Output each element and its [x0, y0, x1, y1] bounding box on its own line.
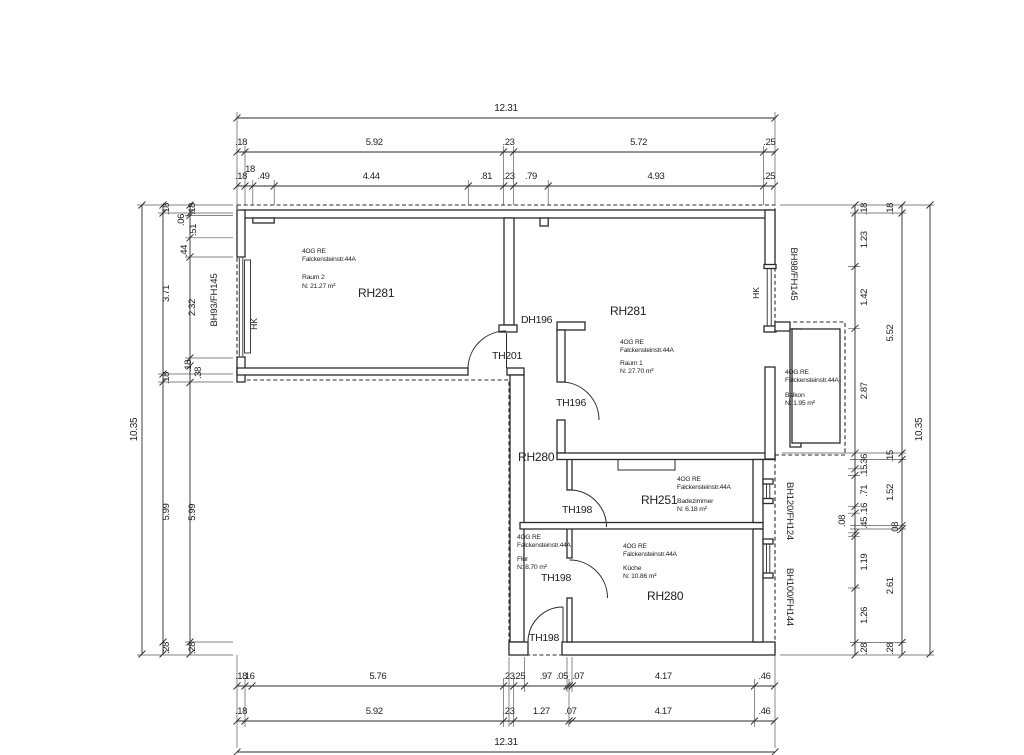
dim-label: .25 [763, 137, 775, 148]
dim-label: .28 [859, 643, 870, 655]
raum2-area: N: 21.27 m² [302, 283, 336, 290]
dim-row-bottom-total: 12.31 [234, 737, 779, 755]
dim-label: 2.32 [187, 299, 198, 316]
dim-label: 18 [245, 164, 255, 175]
dim-label: 12.31 [494, 103, 518, 114]
window-niche [763, 539, 773, 544]
dim-label: 12.31 [494, 737, 518, 748]
dim-label: 1.27 [533, 706, 550, 717]
bad-unit-line1: 4OG RE [677, 476, 702, 483]
dim-label: 4.17 [655, 671, 672, 682]
dim-label: .23 [503, 706, 515, 717]
wall-segment [557, 420, 565, 453]
dim-label: .25 [763, 171, 775, 182]
dim-label: 5.72 [630, 137, 647, 148]
wall-segment [567, 459, 572, 490]
dim-label: 5.52 [885, 324, 896, 341]
raum2-unit-line1: 4OG RE [302, 248, 327, 255]
dim-label: 5.76 [369, 671, 386, 682]
dim-label: .07 [572, 671, 584, 682]
dim-label: .44 [179, 245, 190, 257]
dim-label: .28 [187, 642, 198, 654]
dim-label: .16 [859, 503, 870, 515]
dim-label: 10.35 [129, 417, 140, 441]
dim-row-left-col2: .183.71.185.99.28 [160, 202, 173, 658]
dim-label: 3.71 [161, 285, 172, 302]
dim-row-right-inner: .181.231.422.87.36.15.71.16.45.081.191.2… [837, 202, 870, 659]
dim-row-left-total: 10.35 [129, 202, 146, 658]
wall-segment [237, 210, 245, 257]
dim-label: .18 [235, 137, 247, 148]
dim-label: 10.35 [914, 417, 925, 441]
wall-segment [540, 218, 548, 226]
radiator-label-right: HK [751, 287, 761, 299]
dim-label: .15 [859, 465, 870, 477]
dim-label: .28 [161, 642, 172, 654]
wall-segment [775, 322, 790, 331]
dim-label: .51 [188, 224, 199, 236]
radiator-left [245, 260, 251, 353]
raum2-unit-line2: Falckensteinstr.44A [302, 256, 357, 263]
wall-segment [520, 523, 763, 530]
window-niche [763, 479, 773, 484]
wall-segment [567, 598, 572, 642]
dim-label: 1.26 [859, 607, 870, 624]
window-kitchen-glazing [767, 544, 770, 573]
wall-segment [557, 322, 585, 330]
dim-label: .18 [187, 203, 198, 215]
dim-label: .25 [513, 671, 525, 682]
dim-label: .38 [193, 367, 204, 379]
wall-segment [509, 642, 528, 655]
dim-label: 4.44 [363, 171, 380, 182]
door-arc-th198-kitchen [570, 560, 608, 598]
flur-unit-line1: 4OG RE [517, 534, 542, 541]
bad-area: N: 6.18 m² [677, 506, 708, 513]
bad-unit-line2: Falckensteinstr.44A [677, 484, 732, 491]
window-label-bath: BH120/FH124 [784, 482, 795, 540]
raum2-height-label: RH281 [358, 286, 395, 300]
door-label-dh196: DH196 [521, 314, 553, 326]
window-left-glazing [239, 258, 243, 356]
dim-label: .23 [503, 171, 515, 182]
dim-label: 4.17 [655, 706, 672, 717]
dim-label: .18 [161, 203, 172, 215]
radiator-label-left: HK [249, 318, 259, 330]
dim-label: .07 [564, 706, 576, 717]
dim-row-top-total: 12.31 [234, 103, 779, 122]
wall-segment [504, 218, 514, 325]
wall-segment [765, 210, 775, 267]
flur-area: N: 8.70 m² [517, 564, 548, 571]
wall-layer [237, 210, 840, 655]
wall-segment [764, 326, 776, 332]
dim-label: 5.92 [366, 137, 383, 148]
raum1-area: N: 27.70 m² [620, 368, 654, 375]
balkon-unit-line2: Falckensteinstr.44A [785, 377, 840, 384]
dim-label: .46 [758, 706, 770, 717]
bad-name: Badezimmer [677, 498, 714, 505]
raum2-name: Raum 2 [302, 274, 325, 281]
window-bath-glazing [767, 484, 770, 499]
window-label-left: BH93/FH145 [209, 274, 220, 327]
dim-label: .18 [885, 203, 896, 215]
wall-segment [765, 367, 775, 459]
door-label-th198-entry: TH198 [529, 632, 559, 644]
wall-segment [557, 330, 565, 382]
dim-label: .18 [161, 372, 172, 384]
kueche-unit-line1: 4OG RE [623, 543, 648, 550]
door-label-th198-kitchen: TH198 [541, 572, 571, 584]
kueche-height-label: RH280 [647, 589, 684, 603]
kueche-name: Küche [623, 565, 642, 572]
dim-label: 5.92 [366, 706, 383, 717]
dim-label: 4.93 [647, 171, 664, 182]
dim-label: .08 [837, 515, 848, 527]
raum1-unit-line1: 4OG RE [620, 339, 645, 346]
dim-label: .28 [885, 642, 896, 654]
flur-unit-line2: Falckensteinstr.44A [517, 542, 572, 549]
wall-segment [510, 375, 524, 642]
dim-label: 5.99 [187, 504, 198, 521]
dim-label: .81 [480, 171, 492, 182]
bad-height-label: RH251 [641, 493, 678, 507]
window-label-kitchen: BH100/FH144 [784, 568, 795, 626]
raum1-unit-line2: Falckensteinstr.44A [620, 347, 675, 354]
dim-row-left-col3: .18.06.51.442.32.18.385.99.28 [176, 202, 204, 658]
dim-row-right-mid: .185.52.151.52.082.61.28 [885, 202, 906, 659]
raum1-name: Raum 1 [620, 360, 643, 367]
dim-label: .49 [257, 171, 269, 182]
wall-segment [243, 210, 770, 218]
balkon-name: Balkon [785, 392, 805, 399]
wall-segment [507, 368, 524, 375]
dim-label: .45 [859, 517, 870, 529]
wall-segment [253, 218, 274, 223]
wall-segment [557, 453, 775, 460]
dim-label: .18 [235, 706, 247, 717]
kueche-area: N: 10.86 m² [623, 573, 657, 580]
dim-row-top-row3: .1818.494.44.81.23.794.93.25 [234, 164, 779, 190]
wall-segment [753, 460, 763, 523]
window-label-right: BH98/FH145 [788, 248, 799, 301]
dim-label: 2.87 [859, 382, 870, 399]
balkon-unit-line1: 4OG RE [785, 369, 810, 376]
dim-label: .16 [242, 671, 254, 682]
dim-label: .97 [540, 671, 552, 682]
dim-label: .46 [759, 671, 771, 682]
dim-label: 1.23 [859, 231, 870, 248]
dim-label: .36 [859, 454, 870, 466]
door-label-th196: TH196 [556, 397, 586, 409]
dim-label: .05 [556, 671, 568, 682]
dim-label: 1.52 [885, 484, 896, 501]
kueche-unit-line2: Falckensteinstr.44A [623, 551, 678, 558]
raum1-height-label: RH281 [610, 304, 647, 318]
window-niche [763, 573, 773, 578]
flur-height-label: RH280 [518, 450, 555, 464]
balcony-outline [792, 329, 840, 443]
dim-label: 2.61 [885, 577, 896, 594]
floor-plan: 4OG RE Falckensteinstr.44A Raum 2 N: 21.… [0, 0, 1024, 755]
balkon-area: N: 1.95 m² [785, 400, 816, 407]
dim-label: 1.19 [859, 554, 870, 571]
dim-label: 1.42 [859, 289, 870, 306]
dim-label: .23 [503, 137, 515, 148]
dim-label: .15 [885, 450, 896, 462]
dim-label: .06 [176, 214, 187, 226]
dim-label: .71 [859, 485, 870, 497]
bath-ceiling-notch [618, 460, 675, 470]
window-niche [763, 499, 773, 504]
dim-label: .18 [859, 203, 870, 215]
door-label-th198-bath: TH198 [562, 504, 592, 516]
flur-name: Flur [517, 556, 529, 563]
dim-label: 5.99 [161, 503, 172, 520]
dim-row-bottom-row1: .18.165.76.23.25.97.05.074.17.46 [234, 671, 779, 690]
door-label-th201: TH201 [492, 350, 522, 362]
dim-label: .79 [525, 171, 537, 182]
dim-row-right-total: 10.35 [914, 202, 934, 658]
wall-segment [237, 368, 468, 375]
dim-row-bottom-row2: .185.92.231.27.074.17.46 [234, 706, 779, 725]
wall-segment [753, 529, 763, 642]
floor-plan-canvas: 4OG RE Falckensteinstr.44A Raum 2 N: 21.… [0, 0, 1024, 755]
dim-row-top-row2: .185.92.235.72.25 [234, 137, 779, 156]
dim-label: .08 [890, 522, 901, 534]
wall-segment [764, 265, 776, 269]
window-right-glazing [767, 268, 771, 326]
wall-segment [562, 642, 775, 655]
